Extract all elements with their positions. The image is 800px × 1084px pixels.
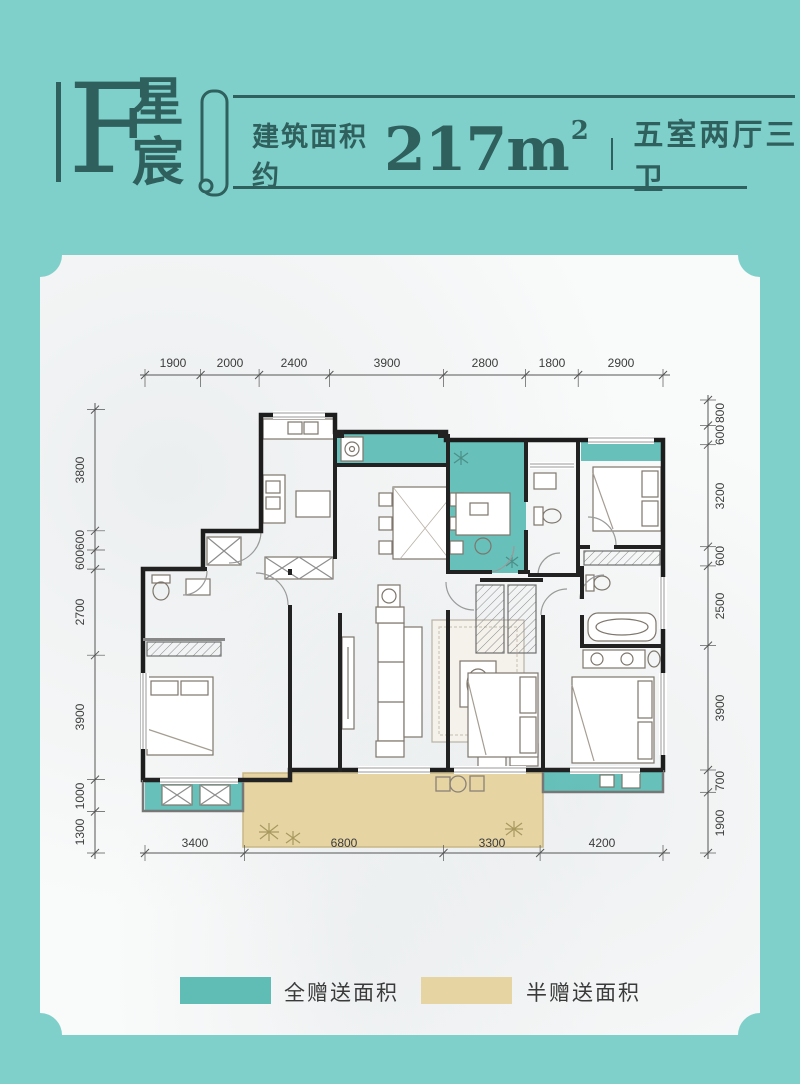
corner-notch (18, 1013, 62, 1057)
dim-label: 1900 (160, 356, 187, 370)
dim-label: 3800 (73, 456, 87, 483)
unit-name: 星 宸 (127, 74, 189, 194)
dim-label: 600 (713, 425, 727, 445)
floor-plan: 1900 2000 2400 3900 2800 1800 2900 3400 … (40, 325, 760, 907)
legend: 全赠送面积 半赠送面积 (40, 971, 760, 1011)
dim-label: 2900 (608, 356, 635, 370)
corner-notch (18, 233, 62, 277)
dim-label: 800 (713, 403, 727, 423)
dim-label: 6800 (331, 836, 358, 850)
corner-notch (738, 233, 782, 277)
corner-notch (738, 1013, 782, 1057)
header: F 星 宸 建筑面积约 217m 2 五室两厅三卫 (0, 0, 800, 255)
legend-full-gift-label: 全赠送面积 (284, 977, 399, 1007)
dim-label: 1900 (713, 809, 727, 836)
floorplan-poster: { "header": { "unit_letter": "F", "unit_… (0, 0, 800, 1084)
dim-label: 2700 (73, 598, 87, 625)
dim-label: 2000 (217, 356, 244, 370)
dim-label: 3900 (73, 703, 87, 730)
laundry-balcony (341, 437, 363, 461)
dim-label: 3900 (374, 356, 401, 370)
legend-full-gift-swatch (180, 977, 271, 1004)
dim-label: 1300 (73, 818, 87, 845)
dim-label: 3400 (182, 836, 209, 850)
dim-label: 3200 (713, 482, 727, 509)
dim-label: 2500 (713, 592, 727, 619)
dim-label: 1800 (539, 356, 566, 370)
unit-name-char: 宸 (127, 134, 189, 194)
legend-half-gift-label: 半赠送面积 (526, 977, 641, 1007)
dim-label: 600 (73, 550, 87, 570)
logo-bar (56, 82, 61, 182)
area-superscript: 2 (571, 116, 589, 146)
dim-label: 700 (713, 771, 727, 791)
header-divider (611, 138, 614, 170)
dim-label: 3300 (479, 836, 506, 850)
dim-label: 2400 (281, 356, 308, 370)
unit-name-char: 星 (127, 74, 189, 134)
area-prefix: 建筑面积约 (252, 115, 374, 193)
dim-label: 600 (713, 546, 727, 566)
plan-card: 1900 2000 2400 3900 2800 1800 2900 3400 … (40, 255, 760, 1035)
dim-label: 3900 (713, 694, 727, 721)
bathroom-tub (584, 551, 660, 641)
area-info: 建筑面积约 217m 2 五室两厅三卫 (252, 112, 800, 182)
dim-label: 1000 (73, 782, 87, 809)
header-rule-top (233, 95, 795, 98)
dim-label: 4200 (589, 836, 616, 850)
area-value: 217m (384, 120, 569, 180)
layout-text: 五室两厅三卫 (633, 110, 800, 198)
scroll-icon (192, 86, 236, 202)
bathroom-1 (534, 473, 561, 525)
master-bedroom (572, 650, 660, 763)
dim-label: 600 (73, 530, 87, 550)
dim-label: 2800 (472, 356, 499, 370)
dining-area (379, 487, 463, 559)
kitchen (263, 419, 335, 579)
legend-half-gift-swatch (421, 977, 512, 1004)
furniture (147, 419, 661, 805)
